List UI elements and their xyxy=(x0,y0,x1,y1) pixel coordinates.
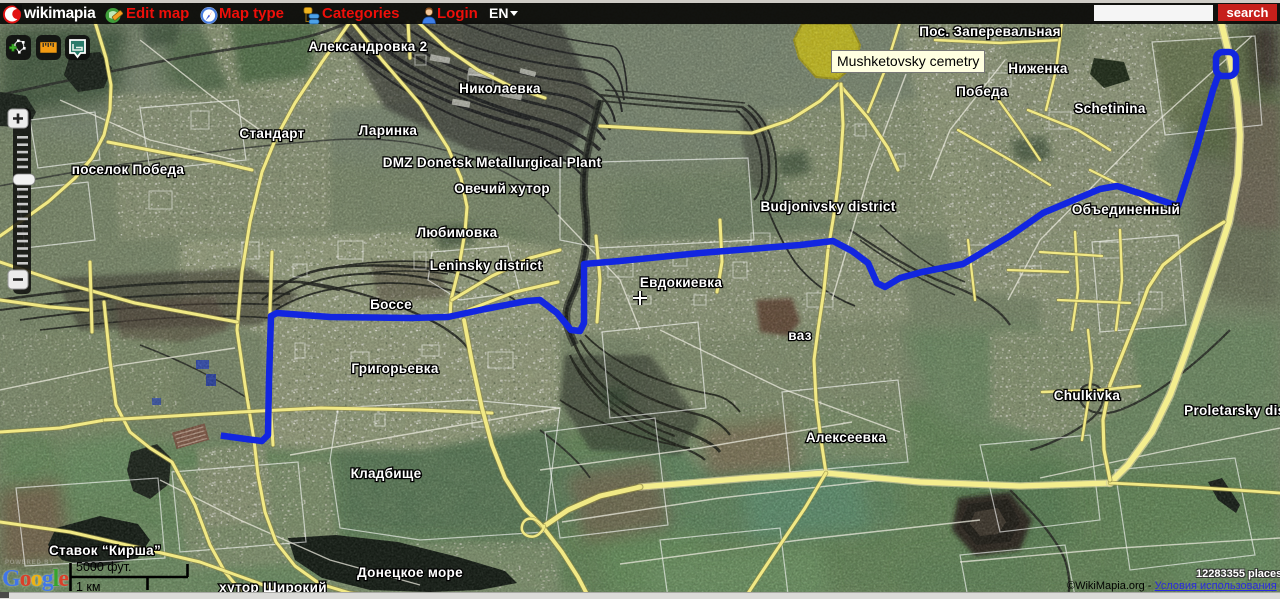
svg-text:Schetinina: Schetinina xyxy=(1074,101,1145,116)
svg-text:Овечий хутор: Овечий хутор xyxy=(454,181,550,196)
svg-text:Chulkivka: Chulkivka xyxy=(1054,388,1121,403)
svg-text:Алексеевка: Алексеевка xyxy=(806,430,887,445)
svg-text:Александровка 2: Александровка 2 xyxy=(309,39,428,54)
svg-text:Budjonivsky district: Budjonivsky district xyxy=(760,199,895,214)
svg-text:Кладбище: Кладбище xyxy=(351,466,422,481)
svg-text:Ларинка: Ларинка xyxy=(359,123,418,138)
svg-text:Евдокиевка: Евдокиевка xyxy=(640,275,722,290)
svg-text:Ниженка: Ниженка xyxy=(1008,61,1068,76)
svg-text:Победа: Победа xyxy=(956,84,1008,99)
svg-text:Leninsky district: Leninsky district xyxy=(430,258,543,273)
svg-text:5000 фут.: 5000 фут. xyxy=(76,560,132,574)
svg-text:Боссе: Боссе xyxy=(370,297,412,312)
svg-text:DMZ Donetsk Metallurgical Plan: DMZ Donetsk Metallurgical Plant xyxy=(383,155,602,170)
svg-text:Николаевка: Николаевка xyxy=(459,81,541,96)
svg-text:Донецкое море: Донецкое море xyxy=(357,565,463,580)
svg-text:Стандарт: Стандарт xyxy=(239,126,304,141)
svg-text:Proletarsky distri: Proletarsky distri xyxy=(1184,403,1280,418)
svg-text:ваз: ваз xyxy=(788,328,811,343)
svg-text:Объединенный: Объединенный xyxy=(1072,202,1180,217)
svg-text:Любимовка: Любимовка xyxy=(417,225,498,240)
svg-text:Пос. Заперевальная: Пос. Заперевальная xyxy=(919,24,1061,39)
svg-text:Григорьевка: Григорьевка xyxy=(351,361,438,376)
